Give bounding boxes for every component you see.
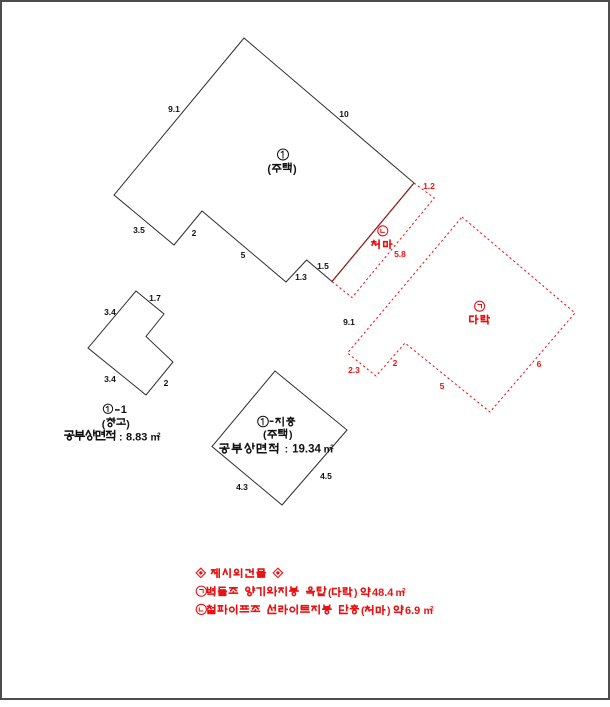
- svg-text:2: 2: [430, 606, 434, 613]
- svg-text:9.1: 9.1: [168, 104, 180, 114]
- svg-text:1.3: 1.3: [295, 272, 307, 282]
- svg-text:9.1: 9.1: [343, 317, 355, 327]
- svg-text:5.8: 5.8: [394, 249, 406, 259]
- svg-text::: :: [285, 444, 289, 456]
- svg-text:4.3: 4.3: [236, 482, 248, 492]
- svg-text:1.5: 1.5: [317, 261, 329, 271]
- svg-text:(: (: [328, 587, 332, 599]
- svg-text:48.4: 48.4: [372, 587, 394, 599]
- svg-text:5: 5: [440, 381, 445, 391]
- svg-text:19.34: 19.34: [292, 444, 321, 456]
- svg-text:(: (: [263, 429, 267, 441]
- svg-text:4.5: 4.5: [320, 471, 332, 481]
- svg-text:1: 1: [121, 404, 127, 416]
- svg-text:8.83: 8.83: [126, 432, 147, 444]
- svg-text:5: 5: [241, 250, 246, 260]
- svg-text:6.9: 6.9: [405, 605, 420, 617]
- svg-text:6: 6: [537, 359, 542, 369]
- svg-text:10: 10: [339, 109, 349, 119]
- svg-text:3.5: 3.5: [133, 225, 145, 235]
- svg-text:2: 2: [330, 444, 334, 451]
- svg-text:): ): [387, 605, 391, 617]
- svg-text:2: 2: [192, 228, 197, 238]
- svg-text:(: (: [267, 163, 271, 175]
- svg-text:2.3: 2.3: [348, 365, 360, 375]
- svg-text:2: 2: [393, 358, 398, 368]
- svg-text:): ): [289, 429, 293, 441]
- svg-text::: :: [119, 432, 123, 444]
- svg-text:1.7: 1.7: [149, 293, 161, 303]
- svg-text:1.2: 1.2: [423, 181, 435, 191]
- svg-text:2: 2: [157, 432, 161, 439]
- svg-text:2: 2: [402, 588, 406, 595]
- svg-text:3.4: 3.4: [104, 374, 116, 384]
- svg-text:(: (: [361, 605, 365, 617]
- svg-text:3.4: 3.4: [104, 307, 116, 317]
- svg-text:): ): [293, 163, 297, 175]
- svg-text:(: (: [102, 418, 106, 430]
- svg-text:): ): [354, 587, 358, 599]
- svg-text:2: 2: [164, 378, 169, 388]
- svg-text:): ): [126, 418, 130, 430]
